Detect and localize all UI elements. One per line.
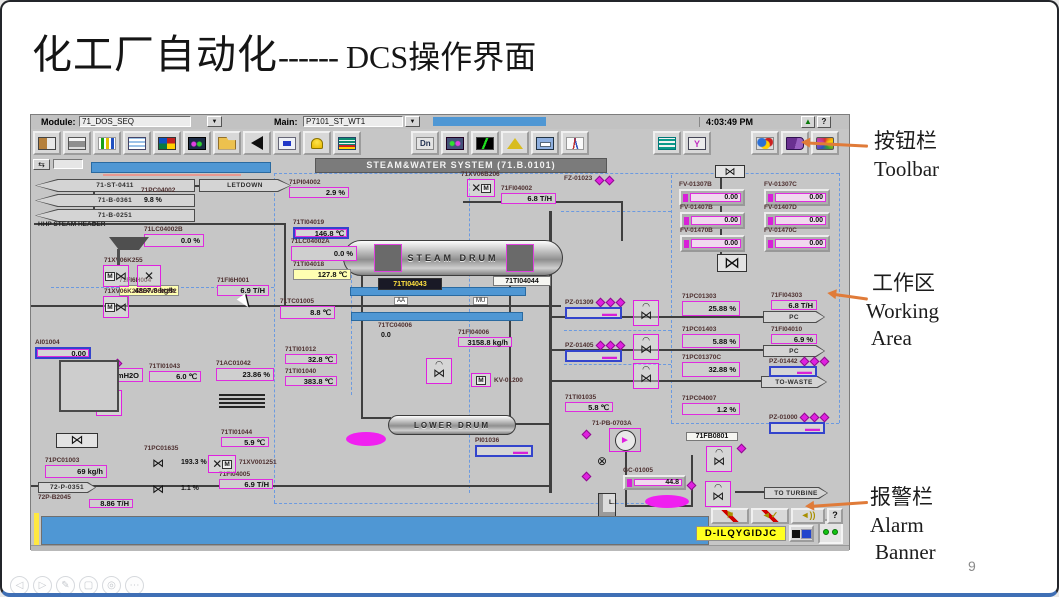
instrument-label: FV-01470B (680, 227, 713, 234)
alarm-diamonds (738, 445, 745, 452)
folder-icon (218, 137, 236, 150)
instrument-label: PZ-01442 (769, 358, 828, 365)
instrument-label: FV-01307C (764, 181, 797, 188)
alarm-diamonds (596, 177, 613, 184)
instrument-71fi04010[interactable]: 71FI040106.9 % (771, 334, 817, 344)
annotation-working-zh: 工作区 (866, 270, 939, 298)
pipe (34, 223, 286, 225)
valve[interactable]: ⊗ (593, 454, 611, 468)
instrument-gc-01005[interactable]: GC-0100544.8 (623, 475, 686, 490)
tiles-icon (158, 137, 176, 150)
instrument-71fi04303[interactable]: 71FI043036.8 T/H (771, 300, 817, 310)
module-select[interactable]: 71_DOS_SEQ (79, 116, 191, 127)
alarm-banner-bar[interactable] (41, 516, 709, 545)
instrument-label: PZ-01405 (565, 342, 624, 349)
instrument-label: 71TI01043 (149, 363, 180, 370)
status-light-green (832, 529, 838, 535)
valve[interactable]: ✕M (467, 179, 495, 197)
vessel-patch (506, 244, 534, 272)
valve[interactable]: ◠⋈ (426, 358, 452, 384)
pipe (625, 505, 693, 507)
valve-kv-01200[interactable]: MKV-01200 (471, 373, 491, 387)
diagram-text: MU (473, 297, 488, 305)
flow-arrow-label: TO TURBINE (765, 488, 827, 498)
alarm-silence-button[interactable]: ⚑ (711, 508, 749, 524)
main-select[interactable]: P7101_ST_WT1 (303, 116, 403, 127)
instrument-value: ▬▬ (475, 445, 533, 457)
pipe (735, 491, 765, 493)
annotation-alarm-zh: 报警栏 (870, 484, 936, 512)
instrument-fv-01470c[interactable]: FV-01470C0.00 (764, 235, 830, 252)
instrument-value: 0.0 % (144, 234, 204, 247)
mountain-search-button[interactable] (501, 131, 529, 155)
valve[interactable]: ◠⋈ (633, 334, 659, 360)
page-title: 化工厂自动化------ DCS操作界面 (32, 22, 536, 80)
instrument-label: 71FI6H001 (217, 277, 249, 284)
instrument-label: 71LC04002A (291, 238, 330, 245)
alarm-diamonds (583, 473, 590, 480)
instrument-71ti04044[interactable]: 71TI04044 (493, 276, 551, 286)
valve[interactable]: ⋈ (149, 482, 167, 496)
blue-panel-icon (536, 137, 554, 150)
flow-arrow-body (761, 376, 827, 388)
instrument-label: 71LC04002B (144, 226, 183, 233)
valve[interactable]: ◠⋈ (705, 481, 731, 507)
tiles-button[interactable] (153, 131, 181, 155)
monitor-cam-button[interactable] (441, 131, 469, 155)
diagram-text: 71PC01635 (144, 445, 178, 452)
vessel-lower-drum: LOWER DRUM (388, 415, 516, 435)
flow-arrow-72-p-0351: 72-P-0351 (38, 482, 96, 493)
bell-button[interactable] (303, 131, 331, 155)
hx-symbol (219, 392, 265, 408)
instrument-71pc04002[interactable]: 71PC040029.8 % (141, 195, 187, 206)
flow-arrow-body (199, 179, 291, 192)
flow-arrow-body (35, 209, 195, 222)
alarm-diamond (582, 472, 592, 482)
diagram-text: HHP STEAM HEADER (38, 221, 105, 228)
instrument-value: 0.0 mmH2O (77, 368, 143, 382)
dashed-line (561, 211, 671, 212)
bars-list-icon (658, 137, 676, 150)
valve-label: 71XV06K255 (104, 257, 143, 264)
instrument-label: FV-01307B (679, 181, 712, 188)
page-title-zh: 化工厂自动化 (32, 32, 278, 77)
printer-button[interactable] (63, 131, 91, 155)
annotation-toolbar-zh: 按钮栏 (874, 128, 939, 156)
blue-square-button[interactable] (273, 131, 301, 155)
faceplate-value: 0.00 (775, 193, 826, 202)
display-icon (188, 137, 206, 150)
mountain-search-icon (507, 138, 523, 149)
nav-blank-field[interactable] (53, 159, 83, 169)
annotation-working-en2: Area (866, 325, 939, 353)
bar-chart-icon (98, 137, 116, 150)
faceplate-value: 0.00 (775, 216, 826, 225)
presentation-control-1[interactable]: ▷ (33, 576, 52, 595)
instrument-value: 25.88 % (682, 301, 740, 316)
pipe (284, 223, 286, 305)
instrument-value: 6.9 T/H (219, 479, 273, 489)
module-dropdown-icon[interactable]: ▼ (207, 116, 222, 127)
faceplate-marker (683, 194, 688, 202)
instrument-value: 3158.8 kg/h (458, 337, 512, 347)
instrument-value: ▬▬ (769, 366, 817, 377)
instrument-71fi04005[interactable]: 71FI040056.9 T/H (219, 479, 273, 489)
green-grid-button[interactable] (333, 131, 361, 155)
annotation-alarm-en1: Alarm (870, 512, 936, 540)
module-label: Module: (41, 117, 76, 127)
instrument-label: 71AC01042 (216, 360, 251, 367)
instrument-71ac01042[interactable]: 71AC0104223.86 % (216, 368, 274, 381)
flow-arrow-body (763, 345, 825, 357)
console-icon-blue (801, 529, 812, 539)
instrument-71ti01040[interactable]: 71TI01040383.8 ℃ (285, 376, 337, 386)
flow-arrow-label: 71-B-0251 (36, 210, 194, 221)
faceplate-value: 0.00 (690, 193, 741, 202)
flow-arrow-label: PC (764, 312, 824, 322)
flow-arrow-label: TO-WASTE (762, 377, 826, 387)
diagram-text: L.I (609, 499, 617, 506)
ellipse-symbol (346, 432, 386, 446)
instrument-71ti04018[interactable]: 71TI04018127.8 ℃ (293, 269, 351, 280)
instrument-label: 71PC01403 (682, 326, 716, 333)
instrument-label: 71TC04006 (378, 322, 412, 329)
instrument-71pc01303[interactable]: 71PC0130325.88 % (682, 301, 740, 316)
instrument-71ti01012[interactable]: 71TI0101232.8 ℃ (285, 354, 337, 364)
faceplate-marker (684, 240, 689, 248)
valve[interactable]: ⋈ (149, 456, 167, 470)
nav-swap-button[interactable]: ⇆ (33, 159, 50, 170)
flow-arrow-body (763, 311, 825, 323)
instrument-label: 71FI04002 (501, 185, 532, 192)
instrument-value: 71TI04043 (378, 278, 442, 290)
instrument-value: 23.86 % (216, 368, 274, 381)
connector-symbol: ⋈ (56, 433, 98, 448)
alarm-diamond (605, 176, 615, 186)
valve[interactable]: ◠⋈ (96, 390, 122, 416)
instrument-71fi04002[interactable]: 71FI040026.8 T/H (501, 193, 556, 204)
instrument-8-86-t-h[interactable]: 8.86 T/H (89, 499, 133, 508)
instrument-label: 71PC01370C (682, 354, 721, 361)
alarm-ack-button[interactable]: ◄✓ (751, 508, 789, 524)
instrument-label: 71PI04002 (289, 179, 320, 186)
flow-arrow-label: 72-P-0351 (39, 483, 95, 492)
blue-panel-button[interactable] (531, 131, 559, 155)
instrument-label: 71PC01303 (682, 293, 716, 300)
alarm-diamond (595, 176, 605, 186)
flow-arrow-label: PC (764, 346, 824, 356)
presentation-control-5[interactable]: ⋯ (125, 576, 144, 595)
valve-label: KV-01200 (494, 377, 523, 384)
connector-symbol: ⋈ (717, 254, 747, 272)
instrument-value: 5.8 ℃ (565, 402, 613, 412)
printer-icon (68, 137, 86, 150)
bars-list-button[interactable] (653, 131, 681, 155)
page-number: 9 (968, 558, 976, 574)
flow-arrow-to-waste: TO-WASTE (761, 376, 827, 388)
instrument-71pc04007[interactable]: 71PC040071.2 % (682, 403, 740, 415)
instrument-fv-01470b[interactable]: FV-01470B0.00 (680, 235, 745, 252)
instrument-label: 71PC04002 (141, 187, 175, 194)
display-button[interactable] (183, 131, 211, 155)
pipe (549, 211, 552, 493)
faceplate-value: 0.00 (691, 216, 741, 225)
instrument-pz-01000[interactable]: PZ-01000▬▬ (769, 422, 825, 434)
faceplate-marker (768, 240, 773, 248)
instrument-value: 0.00 (764, 235, 830, 252)
presentation-controls: ◁▷✎▢◎⋯ (10, 576, 144, 595)
dcs-diagram: STEAM DRUMLOWER DRUM71-ST-041171-B-03617… (31, 115, 849, 549)
annotation-toolbar: 按钮栏 Toolbar (874, 128, 939, 183)
instrument-value: ▬▬ (769, 422, 825, 434)
blue-square-icon (278, 137, 296, 150)
instrument-pz-01405[interactable]: PZ-01405▬▬ (565, 350, 622, 362)
dn-tag-button[interactable] (411, 131, 439, 155)
valve[interactable]: ◠⋈ (706, 446, 732, 472)
curves-button[interactable] (561, 131, 589, 155)
back-arrow-icon (251, 136, 263, 150)
instrument-value: 6.8 T/H (771, 300, 817, 310)
clock: 4:03:49 PM (699, 117, 753, 127)
alarm-diamonds (583, 431, 590, 438)
instrument-71ti04043[interactable]: 71TI04043 (378, 278, 442, 290)
valve[interactable]: ◠⋈ (633, 300, 659, 326)
curves-icon (566, 137, 584, 150)
instrument-value: 2.9 % (289, 187, 349, 198)
alarm-help-button[interactable]: ? (827, 508, 843, 524)
folder-button[interactable] (213, 131, 241, 155)
instrument-value: 0.00 (680, 235, 745, 252)
instrument-71ti01044[interactable]: 71TI010445.9 ℃ (221, 437, 269, 447)
dn-tag-icon (416, 137, 434, 150)
instrument-label: 71PC04007 (682, 395, 716, 402)
instrument-71fb0801[interactable]: 71FB0801 (686, 432, 738, 441)
instrument-label: 71PC01000 (77, 360, 121, 367)
menubar-highlight (433, 117, 546, 126)
dcs-menubar: Module: 71_DOS_SEQ ▼ Main: P7101_ST_WT1 … (31, 115, 849, 130)
page-title-en: DCS操作界面 (338, 39, 536, 75)
instrument-label: GC-01005 (623, 467, 653, 474)
instrument-label: 71TI01044 (221, 429, 252, 436)
instrument-label: 71FI04303 (771, 292, 802, 299)
help-icon[interactable]: ? (817, 116, 831, 128)
instrument-label: 71FI04006 (458, 329, 489, 336)
instrument-label: 71PC01003 (45, 457, 79, 464)
valve-71xv06k253[interactable]: M⋈71XV06K253 (103, 296, 129, 318)
circles-icon (756, 137, 774, 150)
annotation-alarm: 报警栏 Alarm Banner (870, 484, 936, 567)
mouse-cursor (237, 294, 256, 314)
vessel-patch (374, 244, 402, 272)
diagram-text: 1.1 % (181, 485, 199, 492)
instrument-value: ▬▬ (565, 350, 622, 362)
instrument-value: 383.8 ℃ (285, 376, 337, 386)
instrument-label: FV-01407B (680, 204, 713, 211)
flow-arrow-to-turbine: TO TURBINE (764, 487, 828, 499)
instrument-value: 5.88 % (682, 334, 740, 348)
pipe (361, 273, 363, 419)
valve-label: 71XV06K252 (138, 288, 177, 295)
monitor-y-icon (688, 137, 706, 150)
back-arrow-button[interactable] (243, 131, 271, 155)
blue-pipe (351, 312, 523, 321)
dashed-line (274, 173, 275, 503)
instrument-71fi6h001[interactable]: 71FI6H0016.9 T/H (217, 285, 269, 296)
ellipse-symbol (645, 495, 689, 508)
instrument-pz-01442[interactable]: PZ-01442▬▬ (769, 366, 817, 377)
instrument-value: 9.8 % (141, 195, 187, 206)
flow-arrow-71-b-0251: 71-B-0251 (35, 209, 195, 222)
pipe (691, 455, 693, 507)
instrument-label: FV-01470C (764, 227, 797, 234)
instrument-71tc01005[interactable]: 71TC010058.8 ℃ (280, 306, 335, 319)
trend-button[interactable] (471, 131, 499, 155)
instrument-71lc04002a[interactable]: 71LC04002A0.0 % (291, 246, 357, 261)
pump-symbol[interactable]: ► (609, 428, 641, 452)
bar-chart-button[interactable] (93, 131, 121, 155)
window-bottom-strip (31, 545, 849, 551)
instrument-value: 71FB0801 (686, 432, 738, 441)
alarm-station-tag: D-ILQYGIDJC (696, 526, 786, 541)
valve-label: 71XV06K253 (104, 288, 143, 295)
instrument-value: 6.9 % (771, 334, 817, 344)
instrument-label: 71TI04019 (293, 219, 324, 226)
main-dropdown-icon[interactable]: ▼ (405, 116, 420, 127)
blue-pipe (91, 162, 271, 173)
instrument-ai01004[interactable]: AI010040.00 (35, 347, 91, 359)
instrument-label: FV-01407D (764, 204, 797, 211)
instrument-value: 6.9 T/H (217, 285, 269, 296)
console-icon-dark (792, 530, 800, 538)
annotation-alarm-en2: Banner (870, 539, 936, 567)
valve[interactable]: ◠⋈ (633, 363, 659, 389)
instrument-pi01036[interactable]: PI01036▬▬ (475, 445, 533, 457)
flow-arrow-pc: PC (763, 311, 825, 323)
instrument-71pc01000[interactable]: 71PC010000.0 mmH2O (77, 368, 143, 382)
table-search-button[interactable] (123, 131, 151, 155)
faceplate-value: 0.00 (775, 239, 826, 248)
table-search-icon (128, 137, 146, 150)
instrument-value: 8.86 T/H (89, 499, 133, 508)
pipe (31, 485, 551, 487)
exit-door-icon (38, 137, 56, 150)
exit-door-button[interactable] (33, 131, 61, 155)
monitor-y-button[interactable] (683, 131, 711, 155)
dashed-line (564, 330, 671, 331)
instrument-value: 32.88 % (682, 362, 740, 377)
instrument-value: 6.0 ℃ (149, 371, 201, 382)
instrument-71ti01043[interactable]: 71TI010436.0 ℃ (149, 371, 201, 382)
diagram-text: 193.3 % (181, 459, 207, 466)
monitor-cam-icon (446, 137, 464, 150)
flow-arrow-body (764, 487, 828, 499)
instrument-71fi04006[interactable]: 71FI040063158.8 kg/h (458, 337, 512, 347)
instrument-value: 69 kg/h (45, 465, 107, 478)
instrument-label: PZ-01309 (565, 299, 624, 306)
presentation-control-4[interactable]: ◎ (102, 576, 121, 595)
instrument-71lc04002b[interactable]: 71LC04002B0.0 % (144, 234, 204, 247)
circles-button[interactable] (751, 131, 779, 155)
annotation-working-en1: Working (866, 298, 939, 326)
instrument-label: 71TI01035 (565, 394, 596, 401)
valve-71xv06k252[interactable]: ✕71XV06K252 (137, 265, 161, 287)
faceplate-marker (627, 479, 632, 487)
instrument-value: 8.8 ℃ (280, 306, 335, 319)
pipe (361, 417, 391, 419)
faceplate-value: 44.8 (634, 479, 682, 486)
pipe (513, 423, 549, 425)
dashed-line (671, 175, 672, 423)
instrument-71pc01370c[interactable]: 71PC01370C32.88 % (682, 362, 740, 377)
filter-symbol (598, 493, 616, 517)
instrument-value: 5.9 ℃ (221, 437, 269, 447)
instrument-71pc01003[interactable]: 71PC0100369 kg/h (45, 465, 107, 478)
instrument-label: 71TI01040 (285, 368, 316, 375)
alarm-strip (34, 513, 39, 547)
annotation-toolbar-en: Toolbar (874, 156, 939, 184)
instrument-value: 1.2 % (682, 403, 740, 415)
faceplate-marker (684, 217, 689, 225)
diagram-text: 71-PB-0703A (592, 420, 632, 427)
flow-arrow-pc: PC (763, 345, 825, 357)
instrument-71pc01403[interactable]: 71PC014035.88 % (682, 334, 740, 348)
instrument-71pi04002[interactable]: 71PI040022.9 % (289, 187, 349, 198)
instrument-71ti01035[interactable]: 71TI010355.8 ℃ (565, 402, 613, 412)
pipe (93, 185, 95, 225)
status-light-green (823, 529, 829, 535)
graphic-title: STEAM&WATER SYSTEM (71.B.0101) (315, 158, 607, 173)
faceplate-marker (768, 194, 773, 202)
instrument-value: ▬▬ (565, 307, 622, 319)
pink-line (103, 174, 241, 176)
instrument-label: 71FI04010 (771, 326, 802, 333)
diagram-text: AA (394, 297, 408, 305)
instrument-label: 71TI04018 (293, 261, 324, 268)
vessel-steam-drum: STEAM DRUM (343, 240, 563, 276)
pipe (621, 201, 623, 241)
alarm-diamond (687, 481, 697, 491)
instrument-pz-01309[interactable]: PZ-01309▬▬ (565, 307, 622, 319)
flow-arrow-body (38, 482, 96, 493)
instrument-71tc04006[interactable]: 71TC040060.0 (378, 330, 424, 340)
instrument-value: 71TI04044 (493, 276, 551, 286)
run-icon[interactable]: ▲ (801, 116, 815, 128)
faceplate-marker (768, 217, 773, 225)
presentation-control-3[interactable]: ▢ (79, 576, 98, 595)
console-icon[interactable] (789, 525, 814, 542)
dcs-toolbar (31, 129, 849, 158)
valve-71xv001251[interactable]: ✕M71XV001251 (208, 455, 236, 473)
valve-71xv06k255[interactable]: M⋈71XV06K255 (103, 265, 129, 287)
green-grid-icon (338, 137, 356, 150)
slide: 化工厂自动化------ DCS操作界面 Module: 71_DOS_SEQ … (0, 0, 1059, 597)
instrument-value: 0.00 (35, 347, 91, 359)
valve-label: 71XV001251 (239, 459, 277, 466)
dcs-window: Module: 71_DOS_SEQ ▼ Main: P7101_ST_WT1 … (30, 114, 850, 550)
annotation-working: 工作区 Working Area (866, 270, 939, 353)
instrument-value: 127.8 ℃ (293, 269, 351, 280)
alarm-diamonds (688, 482, 695, 489)
dashed-line (274, 173, 839, 174)
alarm-diamond (582, 430, 592, 440)
instrument-value: 0.0 (378, 330, 424, 340)
presentation-control-2[interactable]: ✎ (56, 576, 75, 595)
presentation-control-0[interactable]: ◁ (10, 576, 29, 595)
main-label: Main: (274, 117, 298, 127)
flow-arrow-letdown: LETDOWN (199, 179, 291, 192)
instrument-value: 6.8 T/H (501, 193, 556, 204)
